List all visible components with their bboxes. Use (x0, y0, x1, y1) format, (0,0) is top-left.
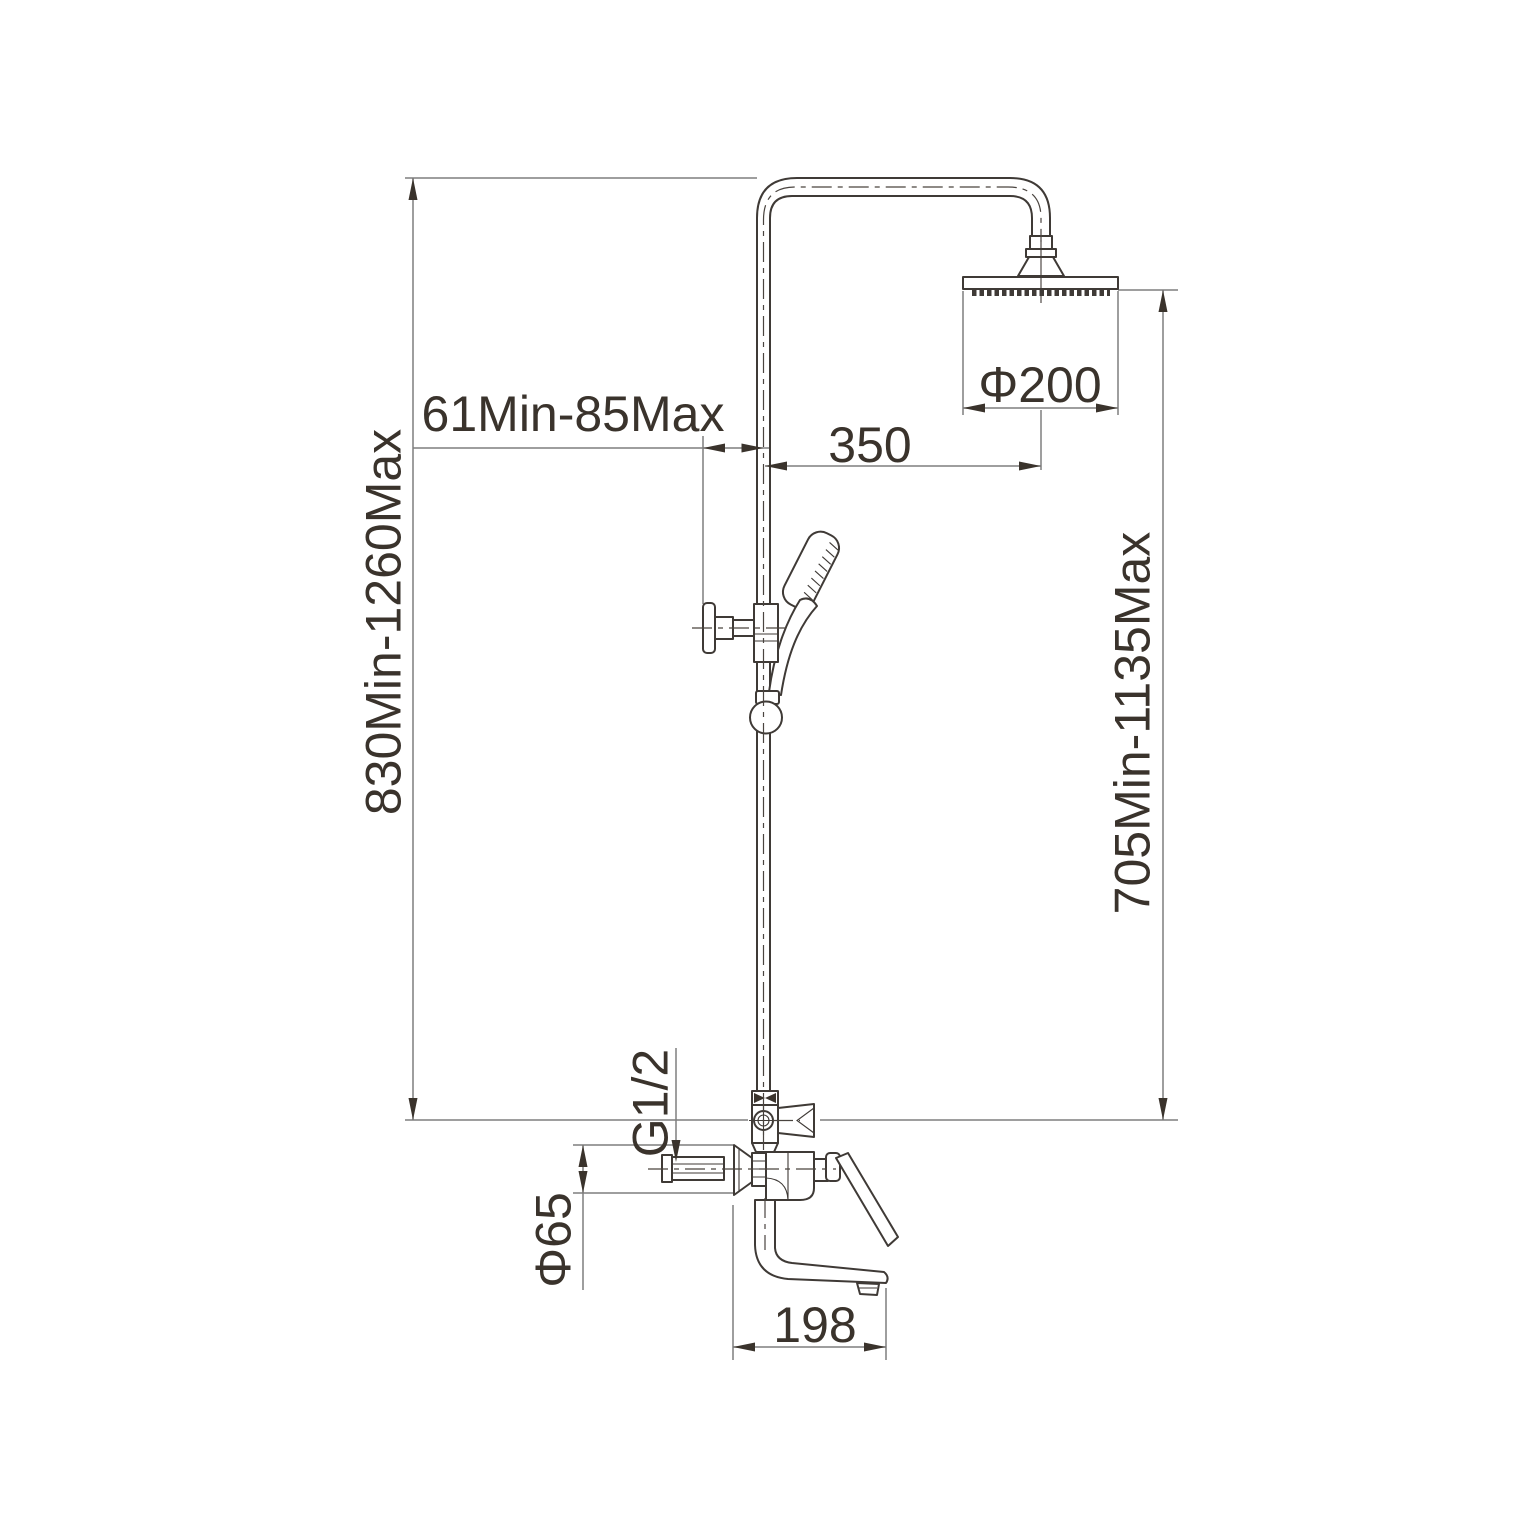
shower-column-technical-drawing: 61Min-85Max 350 Φ200 198 830Min-1260Max … (0, 0, 1536, 1536)
arrow-down (579, 1171, 588, 1193)
arrow-down (1159, 1098, 1168, 1120)
wall-escutcheon (734, 1145, 752, 1195)
arrow-up (579, 1145, 588, 1167)
slider-bracket (703, 603, 778, 662)
riser-pipe (757, 178, 1050, 1092)
dim-column-height-label: 830Min-1260Max (356, 429, 412, 815)
spout-aerator (857, 1283, 879, 1295)
shower-column-assembly (648, 178, 1118, 1295)
ball-joint (750, 702, 782, 734)
arrow-up (409, 178, 418, 200)
arrow-left (733, 1343, 755, 1352)
arrow-right (742, 444, 764, 453)
drawing-canvas: 61Min-85Max 350 Φ200 198 830Min-1260Max … (0, 0, 1536, 1536)
slider-block (754, 604, 778, 662)
dim-head-diameter-label: Φ200 (978, 357, 1101, 413)
riser-centerline (764, 187, 1042, 1150)
arrow-right (864, 1343, 886, 1352)
dim-arm-reach-label: 350 (828, 417, 911, 473)
mixer-valve (662, 1145, 898, 1246)
mixer-lever (836, 1153, 898, 1246)
rain-shower-head (963, 236, 1118, 303)
arrow-left (765, 462, 787, 471)
dim-inlet-thread-label: G1/2 (623, 1049, 679, 1157)
dim-spout-length-label: 198 (773, 1297, 856, 1353)
arrow-up (1159, 290, 1168, 312)
dim-escutcheon-diameter-label: Φ65 (526, 1192, 582, 1288)
arrow-down (409, 1098, 418, 1120)
arrow-right (1019, 462, 1041, 471)
diverter-valve (749, 1091, 814, 1152)
tub-spout (755, 1200, 888, 1295)
arrow-left (703, 444, 725, 453)
dim-head-height-label: 705Min-1135Max (1105, 532, 1161, 915)
diverter-base (752, 1143, 778, 1152)
dim-bracket-offset-label: 61Min-85Max (422, 386, 725, 442)
centerlines (648, 187, 1041, 1250)
mixer-body (766, 1152, 814, 1200)
